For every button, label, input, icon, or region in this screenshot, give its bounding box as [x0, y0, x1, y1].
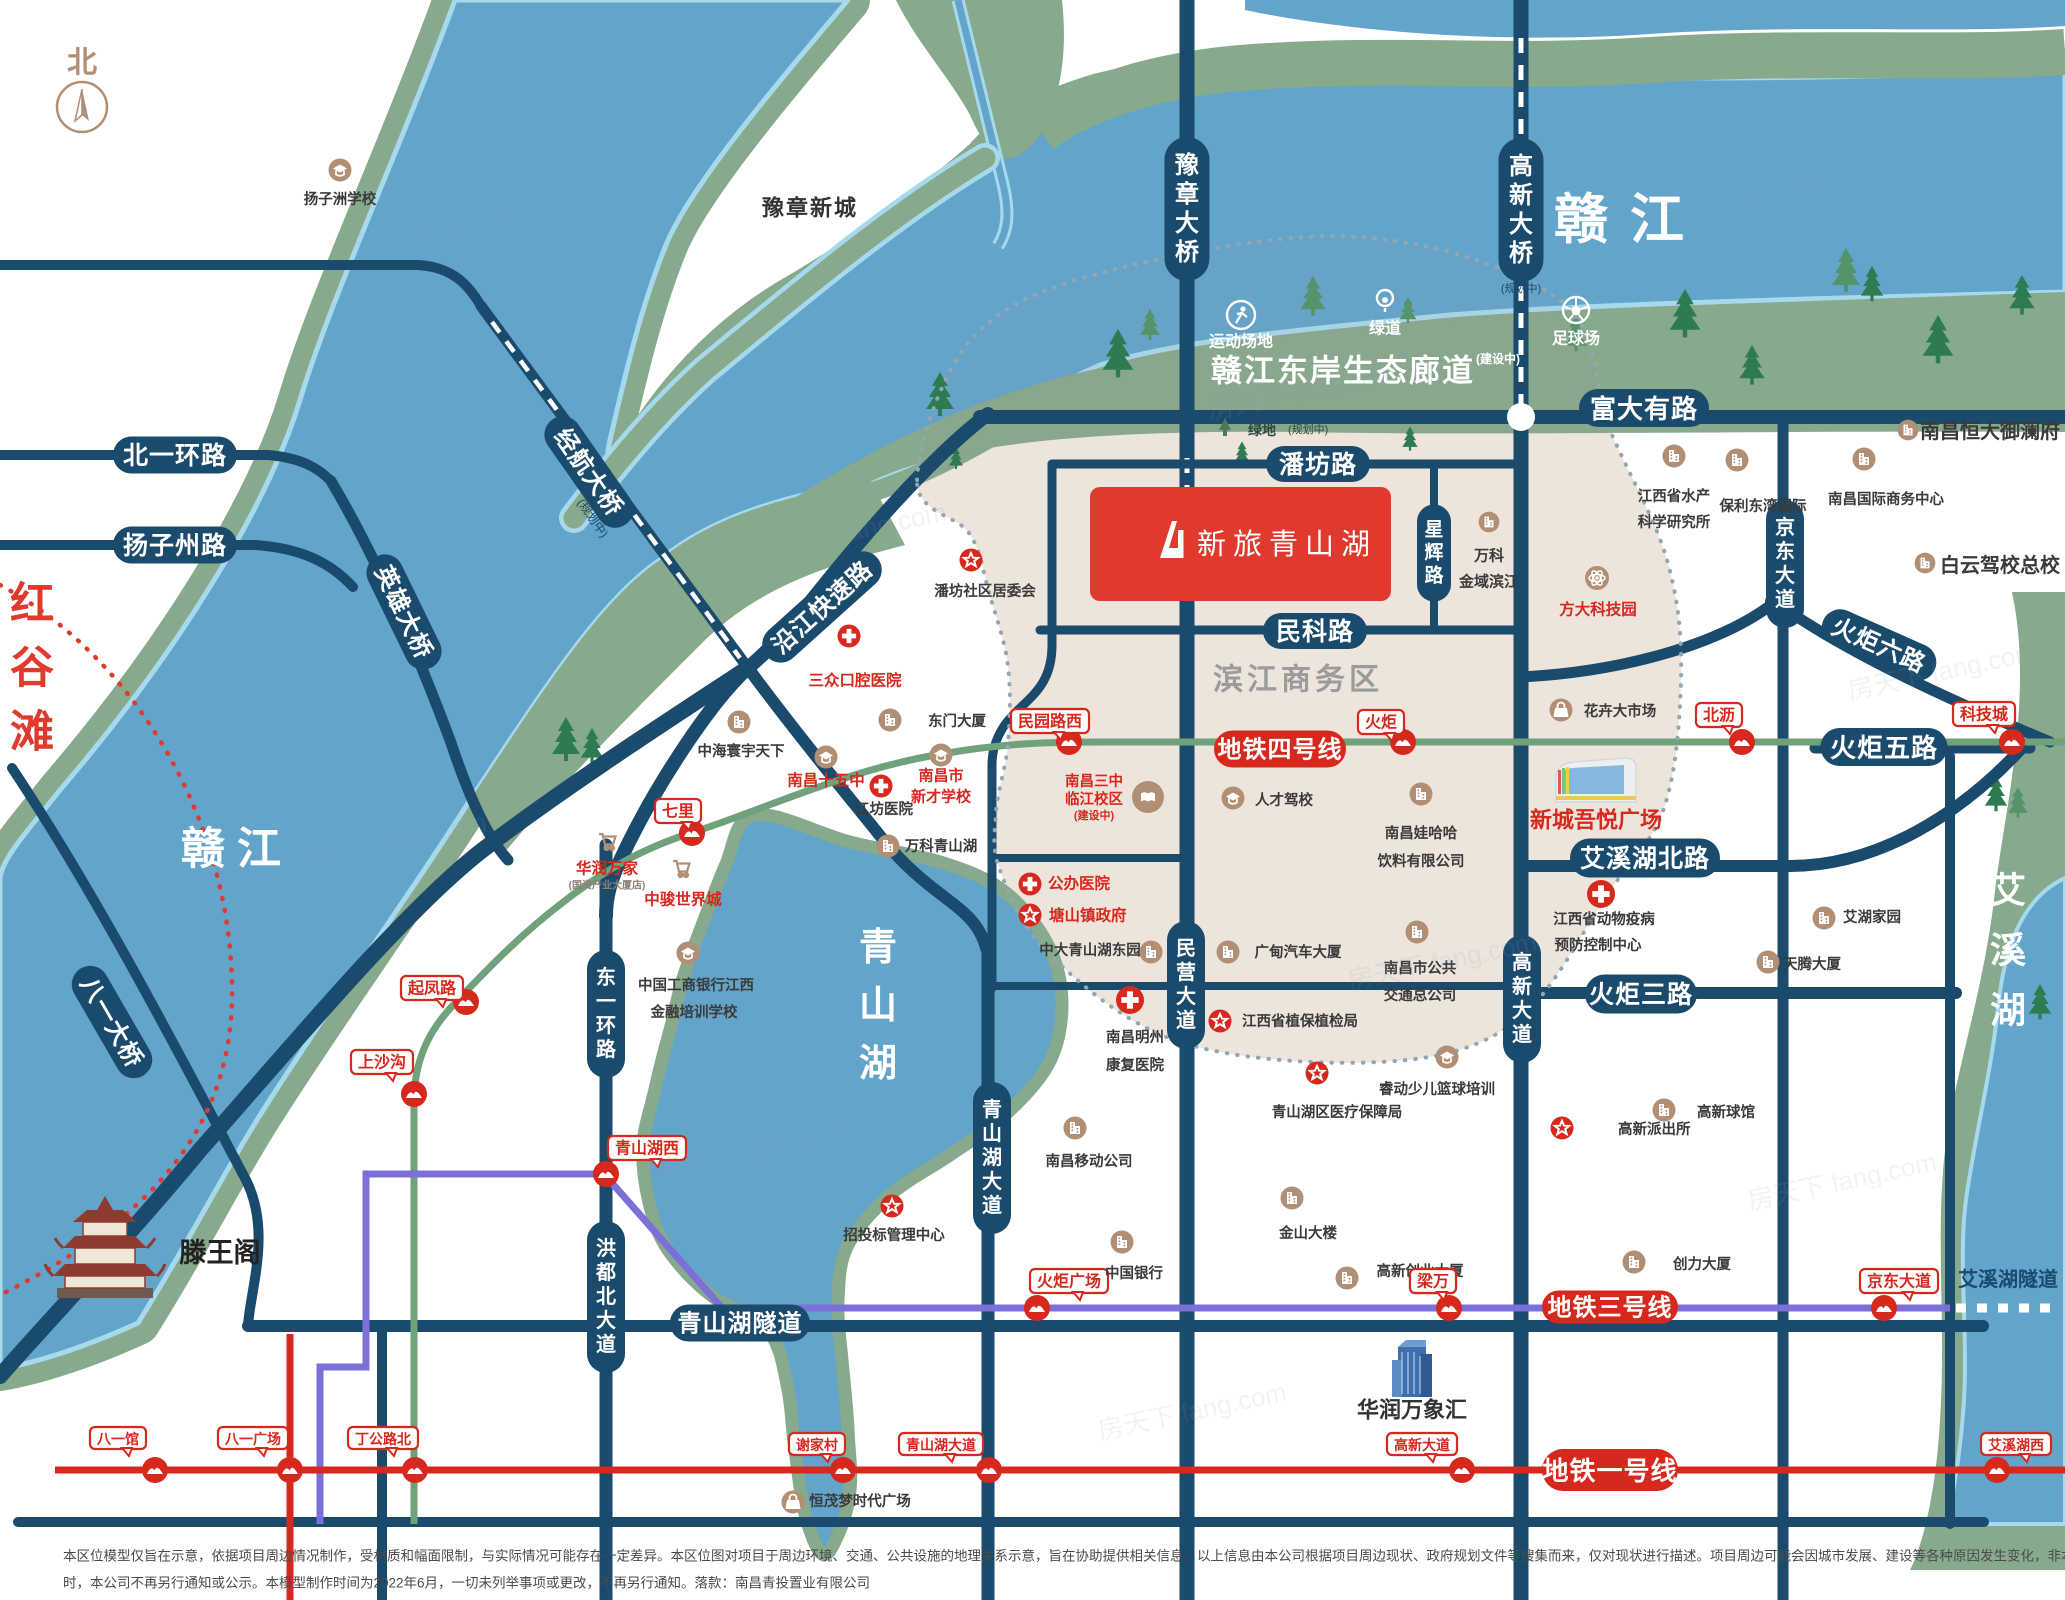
- svg-text:大: 大: [1175, 210, 1199, 237]
- svg-text:金融培训学校: 金融培训学校: [650, 1003, 738, 1021]
- svg-text:方大科技园: 方大科技园: [1559, 600, 1637, 619]
- svg-text:高: 高: [1509, 152, 1533, 180]
- svg-text:八一馆: 八一馆: [96, 1431, 139, 1447]
- svg-text:地铁一号线: 地铁一号线: [1542, 1456, 1677, 1486]
- svg-text:八一广场: 八一广场: [224, 1431, 281, 1447]
- svg-text:南昌娃哈哈: 南昌娃哈哈: [1385, 824, 1458, 842]
- svg-text:潘坊路: 潘坊路: [1279, 450, 1357, 479]
- svg-text:上沙沟: 上沙沟: [358, 1053, 406, 1072]
- svg-text:地铁三号线: 地铁三号线: [1548, 1295, 1673, 1322]
- svg-text:民: 民: [1176, 938, 1196, 960]
- svg-text:艾: 艾: [1990, 870, 2026, 911]
- svg-text:科学研究所: 科学研究所: [1638, 513, 1711, 531]
- svg-text:滕王阁: 滕王阁: [180, 1237, 261, 1268]
- svg-text:湖: 湖: [859, 1043, 897, 1085]
- svg-text:青: 青: [982, 1098, 1002, 1121]
- svg-text:京: 京: [1775, 515, 1795, 539]
- svg-text:南昌恒大御澜府: 南昌恒大御澜府: [1920, 419, 2060, 443]
- svg-text:豫: 豫: [1175, 151, 1199, 179]
- svg-text:江坊医院: 江坊医院: [855, 800, 913, 818]
- svg-text:江西省植保植检局: 江西省植保植检局: [1242, 1012, 1358, 1030]
- svg-text:中国工商银行江西: 中国工商银行江西: [638, 976, 754, 994]
- svg-text:青山湖隧道: 青山湖隧道: [678, 1310, 803, 1338]
- svg-text:高新派出所: 高新派出所: [1618, 1120, 1691, 1138]
- svg-text:保利东湾国际: 保利东湾国际: [1719, 497, 1807, 515]
- svg-text:临江校区: 临江校区: [1065, 790, 1123, 808]
- svg-text:(规划中): (规划中): [1501, 281, 1541, 295]
- svg-text:洪: 洪: [596, 1237, 616, 1260]
- svg-text:艾溪湖隧道: 艾溪湖隧道: [1958, 1267, 2058, 1291]
- svg-text:民园路西: 民园路西: [1018, 712, 1082, 731]
- svg-text:京东大道: 京东大道: [1867, 1272, 1931, 1291]
- svg-text:火炬五路: 火炬五路: [1830, 733, 1938, 763]
- svg-text:谷: 谷: [10, 644, 54, 693]
- svg-text:时，本公司不再另行通知或公示。本模型制作时间为2022年6月: 时，本公司不再另行通知或公示。本模型制作时间为2022年6月，一切未列举事项或更…: [63, 1575, 870, 1591]
- svg-text:艾溪湖北路: 艾溪湖北路: [1580, 845, 1710, 873]
- svg-text:大: 大: [1509, 211, 1533, 238]
- svg-text:扬子州路: 扬子州路: [123, 532, 227, 560]
- svg-text:人才驾校: 人才驾校: [1255, 791, 1313, 809]
- svg-text:恒茂梦时代广场: 恒茂梦时代广场: [809, 1492, 911, 1510]
- svg-text:中国银行: 中国银行: [1105, 1264, 1163, 1282]
- svg-text:南昌明州: 南昌明州: [1106, 1028, 1164, 1046]
- svg-text:潘坊社区居委会: 潘坊社区居委会: [934, 582, 1036, 600]
- svg-text:道: 道: [1775, 587, 1795, 611]
- svg-text:道: 道: [596, 1332, 616, 1356]
- svg-text:交通总公司: 交通总公司: [1384, 986, 1457, 1004]
- svg-text:湖: 湖: [982, 1146, 1002, 1169]
- svg-text:广甸汽车大厦: 广甸汽车大厦: [1255, 943, 1342, 961]
- svg-text:山: 山: [982, 1122, 1002, 1145]
- svg-text:南昌国际商务中心: 南昌国际商务中心: [1828, 490, 1944, 508]
- svg-text:预防控制中心: 预防控制中心: [1555, 936, 1642, 954]
- svg-text:豫章新城: 豫章新城: [762, 196, 858, 221]
- svg-text:绿地: 绿地: [1248, 422, 1276, 438]
- svg-text:道: 道: [1176, 1008, 1196, 1032]
- svg-text:中骏世界城: 中骏世界城: [644, 890, 722, 909]
- svg-text:辉: 辉: [1424, 542, 1443, 564]
- svg-text:地铁四号线: 地铁四号线: [1218, 737, 1343, 764]
- svg-text:高新球馆: 高新球馆: [1697, 1103, 1755, 1121]
- svg-text:湖: 湖: [1990, 990, 2026, 1031]
- svg-text:金域滨江: 金域滨江: [1458, 573, 1519, 591]
- svg-text:火炬三路: 火炬三路: [1589, 981, 1693, 1009]
- svg-text:东: 东: [1775, 539, 1795, 563]
- svg-text:北: 北: [67, 47, 97, 80]
- svg-text:科技城: 科技城: [1960, 705, 2008, 724]
- svg-text:(建设中): (建设中): [1074, 808, 1115, 822]
- svg-text:白云驾校总校: 白云驾校总校: [1940, 553, 2061, 577]
- svg-text:(建设中): (建设中): [1476, 351, 1520, 366]
- svg-text:扬子洲学校: 扬子洲学校: [304, 190, 377, 208]
- svg-text:星: 星: [1424, 519, 1443, 541]
- svg-text:都: 都: [595, 1261, 616, 1284]
- svg-text:路: 路: [1424, 564, 1444, 587]
- svg-text:东门大厦: 东门大厦: [928, 712, 986, 730]
- svg-text:(规划中): (规划中): [1288, 422, 1328, 436]
- svg-text:起凤路: 起凤路: [407, 979, 457, 998]
- svg-text:火炬广场: 火炬广场: [1037, 1272, 1101, 1291]
- svg-text:道: 道: [1512, 1022, 1532, 1046]
- svg-text:营: 营: [1176, 960, 1196, 984]
- svg-text:七里: 七里: [662, 803, 694, 821]
- svg-text:饮料有限公司: 饮料有限公司: [1377, 852, 1465, 870]
- svg-text:新: 新: [1509, 181, 1533, 209]
- svg-text:华润万象汇: 华润万象汇: [1357, 1398, 1467, 1423]
- svg-text:溪: 溪: [1990, 930, 2026, 971]
- svg-text:火炬: 火炬: [1365, 713, 1397, 732]
- svg-text:万科: 万科: [1473, 547, 1504, 565]
- svg-text:花卉大市场: 花卉大市场: [1584, 702, 1657, 720]
- svg-text:创力大厦: 创力大厦: [1672, 1255, 1731, 1273]
- svg-text:足球场: 足球场: [1552, 329, 1600, 348]
- svg-text:赣江: 赣江: [181, 825, 293, 874]
- svg-text:康复医院: 康复医院: [1106, 1056, 1164, 1074]
- svg-text:民科路: 民科路: [1276, 618, 1354, 646]
- svg-text:红: 红: [10, 580, 54, 629]
- svg-text:章: 章: [1175, 180, 1199, 208]
- svg-text:本区位模型仅旨在示意，依据项目周边情况制作，受材质和幅面限制: 本区位模型仅旨在示意，依据项目周边情况制作，受材质和幅面限制，与实际情况可能存在…: [63, 1548, 2065, 1564]
- svg-text:东: 东: [596, 965, 616, 989]
- svg-text:丁公路北: 丁公路北: [355, 1431, 411, 1447]
- svg-text:山: 山: [859, 985, 897, 1027]
- svg-text:北沥: 北沥: [1703, 707, 1735, 725]
- svg-text:环: 环: [596, 1015, 616, 1037]
- svg-text:中海寰宇天下: 中海寰宇天下: [698, 742, 785, 760]
- svg-text:新: 新: [1512, 974, 1532, 998]
- svg-text:北: 北: [596, 1285, 616, 1308]
- svg-text:一: 一: [596, 991, 616, 1013]
- svg-text:大: 大: [596, 1309, 616, 1332]
- svg-text:桥: 桥: [1175, 239, 1200, 266]
- svg-text:三众口腔医院: 三众口腔医院: [808, 671, 902, 690]
- svg-text:公办医院: 公办医院: [1048, 874, 1111, 893]
- svg-text:新城吾悦广场: 新城吾悦广场: [1530, 808, 1662, 833]
- svg-text:新才学校: 新才学校: [911, 788, 972, 806]
- svg-text:青山湖区医疗保障局: 青山湖区医疗保障局: [1272, 1103, 1403, 1121]
- svg-text:天腾大厦: 天腾大厦: [1783, 955, 1841, 973]
- svg-text:江西省动物疫病: 江西省动物疫病: [1553, 910, 1655, 928]
- svg-text:南昌十五中: 南昌十五中: [787, 771, 865, 790]
- svg-text:金山大楼: 金山大楼: [1278, 1224, 1337, 1242]
- svg-text:新旅青山湖: 新旅青山湖: [1197, 528, 1377, 561]
- svg-text:富大有路: 富大有路: [1590, 394, 1698, 424]
- svg-text:睿动少儿篮球培训: 睿动少儿篮球培训: [1379, 1080, 1495, 1098]
- svg-text:艾湖家园: 艾湖家园: [1843, 908, 1901, 926]
- svg-text:华润万家: 华润万家: [576, 859, 639, 878]
- svg-text:南昌三中: 南昌三中: [1065, 772, 1123, 790]
- svg-text:路: 路: [596, 1037, 617, 1061]
- svg-text:招投标管理中心: 招投标管理中心: [843, 1226, 945, 1244]
- svg-text:北一环路: 北一环路: [123, 442, 227, 470]
- svg-text:大: 大: [1775, 564, 1795, 587]
- svg-text:高新大道: 高新大道: [1394, 1437, 1450, 1453]
- svg-text:万科青山湖: 万科青山湖: [904, 837, 978, 855]
- svg-text:滨江商务区: 滨江商务区: [1213, 663, 1383, 697]
- svg-text:中大青山湖东园: 中大青山湖东园: [1039, 941, 1141, 959]
- svg-text:南昌市: 南昌市: [918, 767, 963, 785]
- svg-text:大: 大: [982, 1170, 1002, 1193]
- svg-text:滩: 滩: [10, 708, 54, 757]
- svg-text:江西省水产: 江西省水产: [1638, 487, 1711, 505]
- svg-text:大: 大: [1176, 985, 1196, 1008]
- svg-text:青山湖大道: 青山湖大道: [906, 1437, 976, 1453]
- svg-text:塘山镇政府: 塘山镇政府: [1049, 906, 1127, 925]
- svg-text:道: 道: [982, 1193, 1002, 1217]
- svg-text:梁万: 梁万: [1416, 1272, 1449, 1291]
- svg-text:运动场地: 运动场地: [1209, 332, 1273, 351]
- svg-text:(国资产业大厦店): (国资产业大厦店): [569, 879, 646, 892]
- svg-text:南昌移动公司: 南昌移动公司: [1046, 1152, 1133, 1170]
- svg-text:绿道: 绿道: [1369, 319, 1401, 338]
- svg-text:大: 大: [1512, 999, 1532, 1022]
- svg-text:谢家村: 谢家村: [796, 1437, 838, 1453]
- svg-text:青: 青: [859, 927, 897, 969]
- svg-text:桥: 桥: [1509, 240, 1534, 267]
- svg-text:艾溪湖西: 艾溪湖西: [1988, 1437, 2044, 1453]
